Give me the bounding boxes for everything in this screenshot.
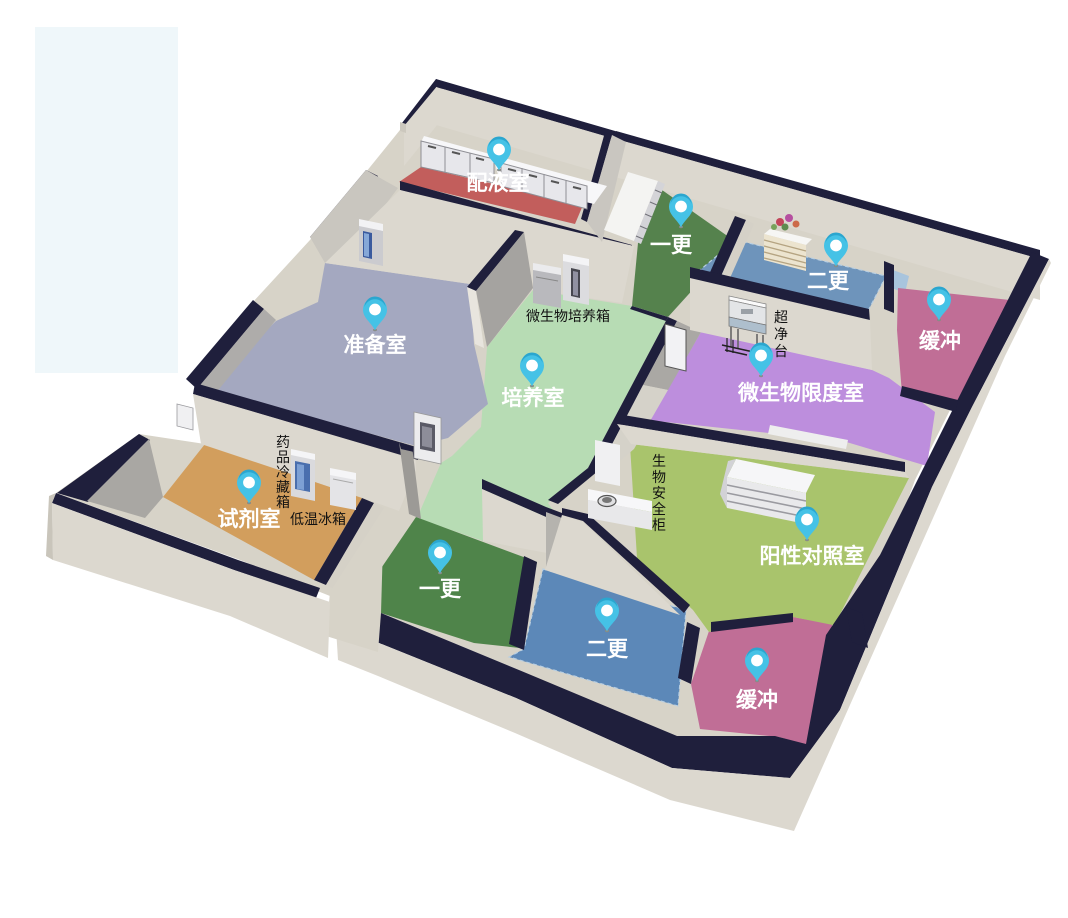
svg-text:药: 药 [276, 435, 290, 451]
svg-text:配液室: 配液室 [467, 171, 530, 195]
svg-text:一更: 一更 [650, 234, 693, 257]
svg-text:超: 超 [774, 310, 788, 326]
svg-text:柜: 柜 [652, 518, 666, 534]
svg-text:试剂室: 试剂室 [218, 507, 281, 531]
svg-text:缓冲: 缓冲 [736, 688, 778, 712]
svg-text:二更: 二更 [807, 270, 850, 293]
svg-text:一更: 一更 [419, 578, 462, 601]
svg-text:净: 净 [774, 327, 788, 343]
svg-text:安: 安 [652, 486, 666, 502]
svg-text:微生物限度室: 微生物限度室 [737, 381, 864, 405]
svg-text:二更: 二更 [586, 638, 629, 661]
svg-text:箱: 箱 [276, 495, 290, 511]
svg-text:品: 品 [276, 451, 290, 466]
svg-text:物: 物 [652, 470, 666, 486]
svg-text:冷: 冷 [276, 465, 290, 481]
svg-text:培养室: 培养室 [502, 386, 565, 410]
svg-text:微生物培养箱: 微生物培养箱 [526, 309, 610, 325]
svg-text:全: 全 [652, 501, 666, 518]
svg-text:阳性对照室: 阳性对照室 [760, 544, 865, 568]
svg-text:生: 生 [652, 454, 666, 470]
svg-text:藏: 藏 [276, 480, 290, 496]
svg-text:准备室: 准备室 [344, 333, 407, 357]
svg-text:低温冰箱: 低温冰箱 [290, 512, 346, 528]
svg-text:台: 台 [774, 344, 788, 360]
svg-text:缓冲: 缓冲 [919, 329, 961, 353]
